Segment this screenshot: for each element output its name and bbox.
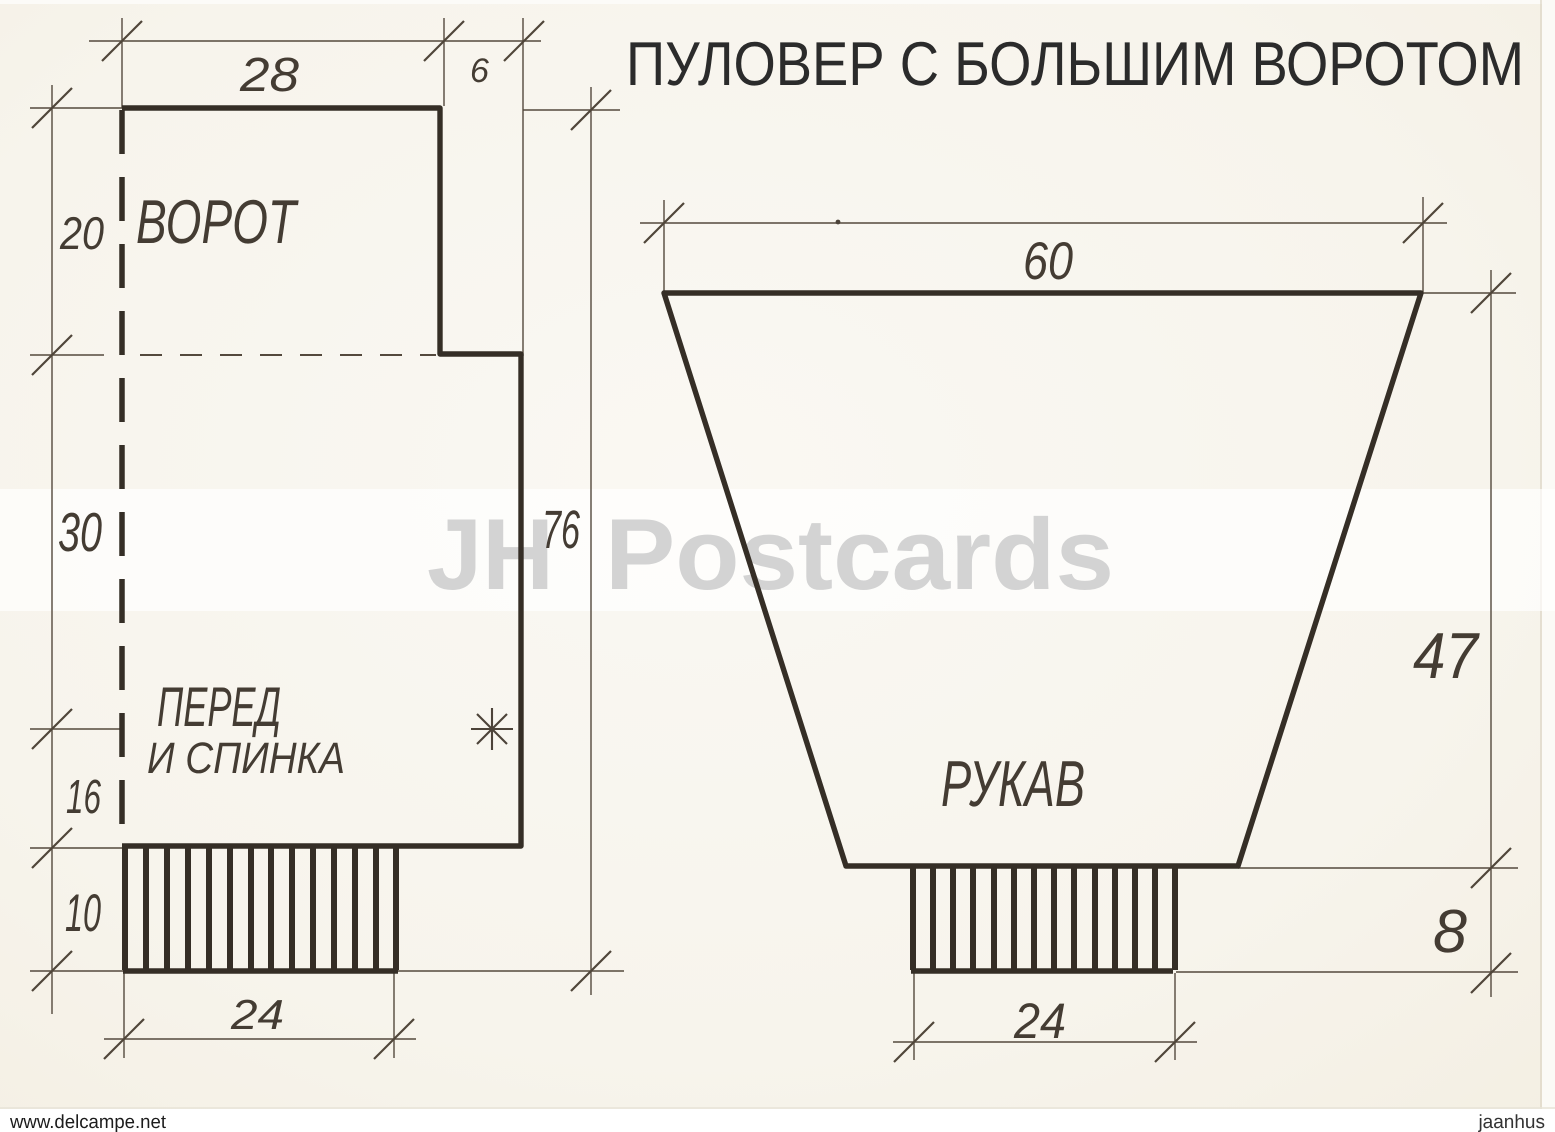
svg-text:И СПИНКА: И СПИНКА — [147, 734, 345, 783]
svg-text:20: 20 — [59, 207, 104, 259]
svg-text:28: 28 — [239, 49, 299, 102]
svg-text:47: 47 — [1413, 619, 1481, 692]
svg-text:30: 30 — [58, 501, 102, 563]
svg-text:jaanhus: jaanhus — [1477, 1112, 1545, 1132]
svg-text:16: 16 — [66, 771, 101, 824]
svg-text:РУКАВ: РУКАВ — [941, 747, 1085, 820]
svg-text:ПУЛОВЕР С БОЛЬШИМ ВОРОТОМ: ПУЛОВЕР С БОЛЬШИМ ВОРОТОМ — [626, 30, 1524, 99]
svg-text:Postcards: Postcards — [605, 499, 1114, 611]
svg-text:24: 24 — [1013, 993, 1066, 1049]
svg-text:JH: JH — [427, 499, 554, 611]
svg-text:8: 8 — [1433, 897, 1467, 965]
svg-text:www.delcampe.net: www.delcampe.net — [9, 1112, 167, 1132]
svg-text:24: 24 — [230, 991, 284, 1038]
svg-text:10: 10 — [65, 884, 101, 943]
svg-text:76: 76 — [542, 500, 581, 560]
svg-text:ВОРОТ: ВОРОТ — [136, 188, 299, 257]
svg-text:ПЕРЕД: ПЕРЕД — [157, 675, 281, 738]
svg-text:6: 6 — [470, 52, 489, 90]
svg-text:60: 60 — [1023, 232, 1073, 291]
